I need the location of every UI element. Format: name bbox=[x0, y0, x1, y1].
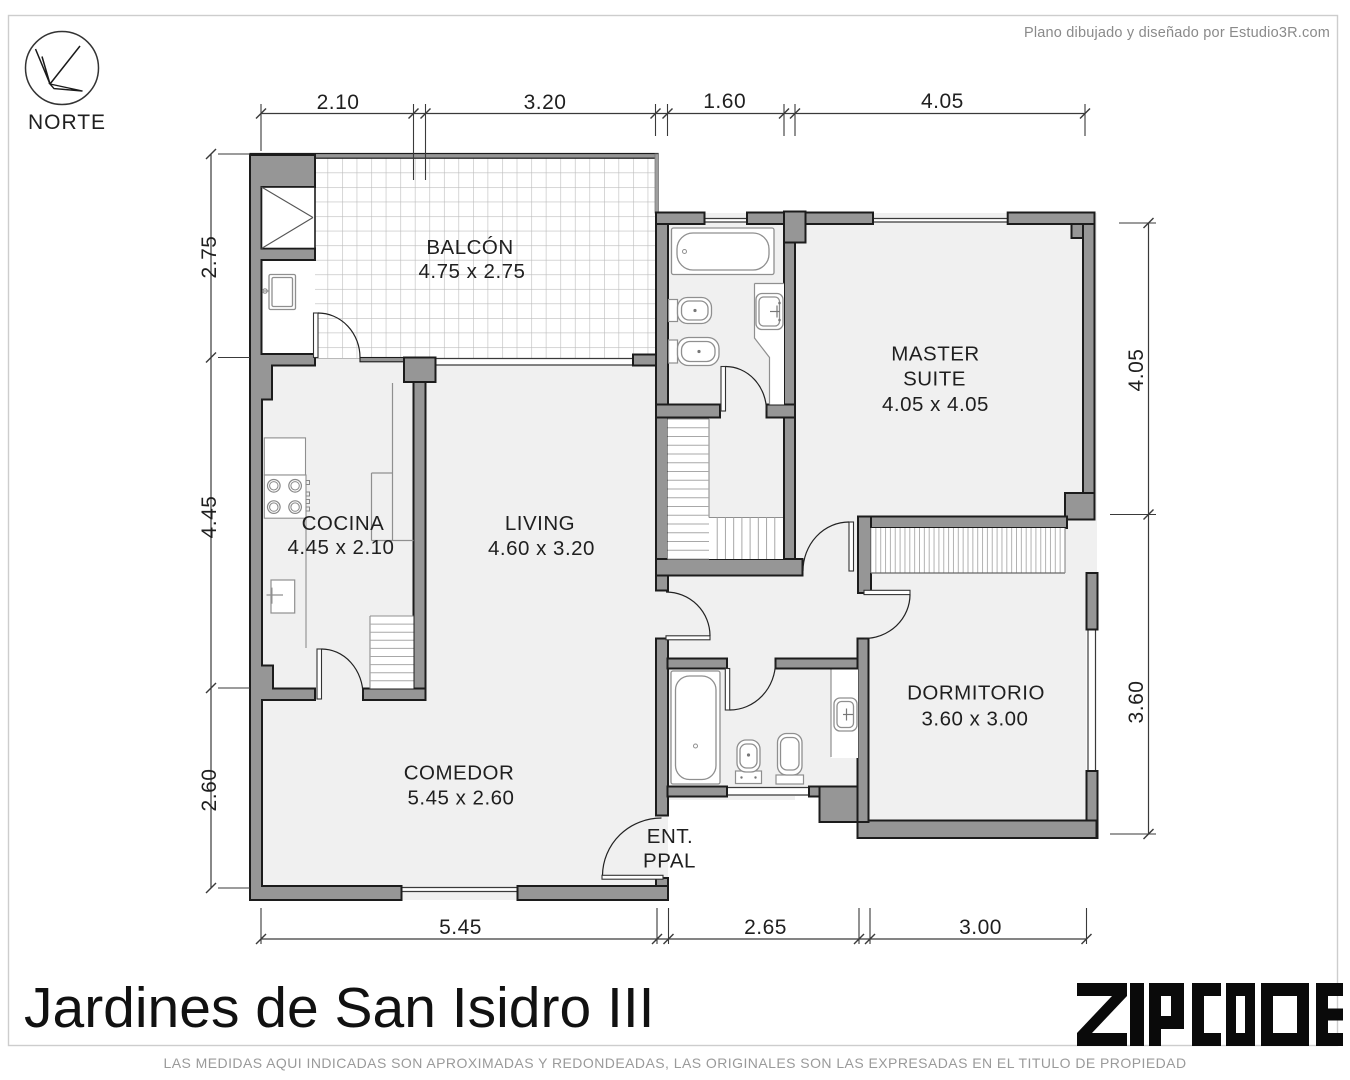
svg-text:4.05 x 4.05: 4.05 x 4.05 bbox=[882, 393, 989, 416]
svg-text:COMEDOR: COMEDOR bbox=[404, 762, 515, 785]
svg-text:2.75: 2.75 bbox=[198, 236, 221, 279]
svg-text:DORMITORIO: DORMITORIO bbox=[907, 682, 1045, 705]
svg-text:1.60: 1.60 bbox=[703, 90, 746, 113]
svg-text:LAS MEDIDAS AQUI INDICADAS SON: LAS MEDIDAS AQUI INDICADAS SON APROXIMAD… bbox=[163, 1055, 1186, 1071]
svg-text:5.45: 5.45 bbox=[439, 916, 482, 939]
svg-text:4.05: 4.05 bbox=[921, 90, 964, 113]
svg-text:LIVING: LIVING bbox=[505, 512, 575, 535]
svg-text:MASTER: MASTER bbox=[891, 343, 979, 366]
svg-text:3.00: 3.00 bbox=[959, 916, 1002, 939]
svg-text:2.65: 2.65 bbox=[744, 916, 787, 939]
svg-text:4.05: 4.05 bbox=[1125, 349, 1148, 392]
svg-text:PPAL: PPAL bbox=[643, 850, 696, 873]
svg-text:BALCÓN: BALCÓN bbox=[426, 236, 513, 259]
svg-text:NORTE: NORTE bbox=[28, 111, 106, 134]
svg-text:3.60: 3.60 bbox=[1125, 681, 1148, 724]
svg-text:4.60 x 3.20: 4.60 x 3.20 bbox=[488, 537, 595, 560]
svg-text:4.45 x 2.10: 4.45 x 2.10 bbox=[288, 536, 395, 559]
svg-text:2.10: 2.10 bbox=[317, 91, 360, 114]
svg-text:4.75 x 2.75: 4.75 x 2.75 bbox=[419, 260, 526, 283]
svg-text:3.20: 3.20 bbox=[524, 91, 567, 114]
svg-text:Plano dibujado y diseñado por: Plano dibujado y diseñado por Estudio3R.… bbox=[1024, 25, 1330, 41]
svg-text:SUITE: SUITE bbox=[903, 368, 966, 391]
svg-text:ENT.: ENT. bbox=[647, 825, 693, 848]
svg-text:5.45 x 2.60: 5.45 x 2.60 bbox=[408, 787, 515, 810]
svg-text:COCINA: COCINA bbox=[302, 512, 385, 535]
svg-text:4.45: 4.45 bbox=[198, 496, 221, 539]
svg-text:2.60: 2.60 bbox=[198, 769, 221, 812]
svg-text:3.60 x 3.00: 3.60 x 3.00 bbox=[922, 708, 1029, 731]
svg-text:Jardines de San Isidro III: Jardines de San Isidro III bbox=[24, 976, 655, 1040]
